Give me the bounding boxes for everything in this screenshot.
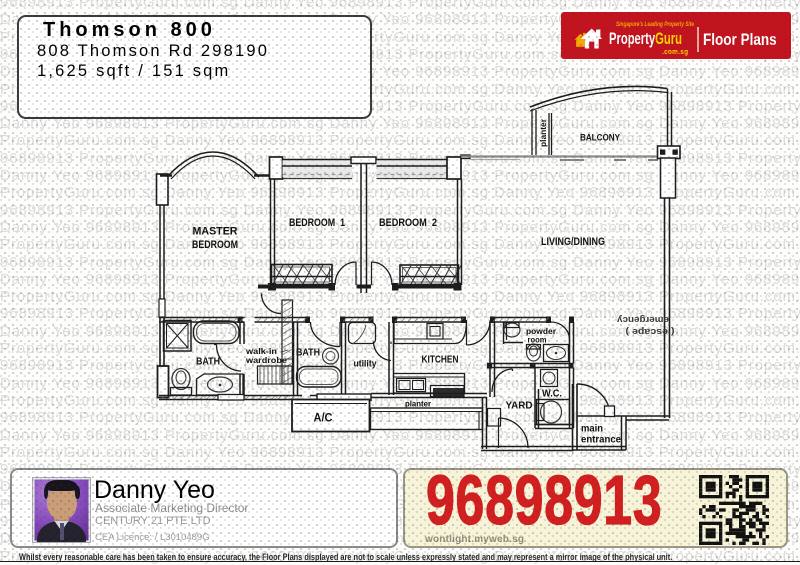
svg-text:KITCHEN: KITCHEN (422, 354, 459, 366)
svg-text:MASTER: MASTER (193, 226, 238, 238)
svg-text:A/C: A/C (314, 413, 333, 425)
svg-text:LIVING/DINING: LIVING/DINING (541, 236, 605, 248)
svg-text:BEDROOM 1: BEDROOM 1 (289, 217, 345, 229)
svg-text:BEDROOM 2: BEDROOM 2 (379, 217, 437, 229)
svg-text:planter: planter (405, 399, 432, 409)
svg-text:W.C.: W.C. (542, 388, 562, 400)
svg-text:YARD: YARD (506, 400, 533, 412)
svg-text:utility: utility (354, 359, 378, 370)
svg-text:wardrobe: wardrobe (245, 355, 287, 365)
svg-text:emergency: emergency (617, 315, 669, 325)
svg-text:BEDROOM: BEDROOM (192, 239, 238, 251)
svg-text:room: room (528, 335, 547, 345)
svg-text:BALCONY: BALCONY (580, 133, 621, 144)
svg-text:( escape ): ( escape ) (626, 327, 675, 337)
svg-text:entrance: entrance (581, 434, 621, 446)
svg-text:planter: planter (539, 119, 548, 147)
svg-text:BATH: BATH (196, 356, 220, 368)
svg-text:BATH: BATH (296, 347, 320, 359)
